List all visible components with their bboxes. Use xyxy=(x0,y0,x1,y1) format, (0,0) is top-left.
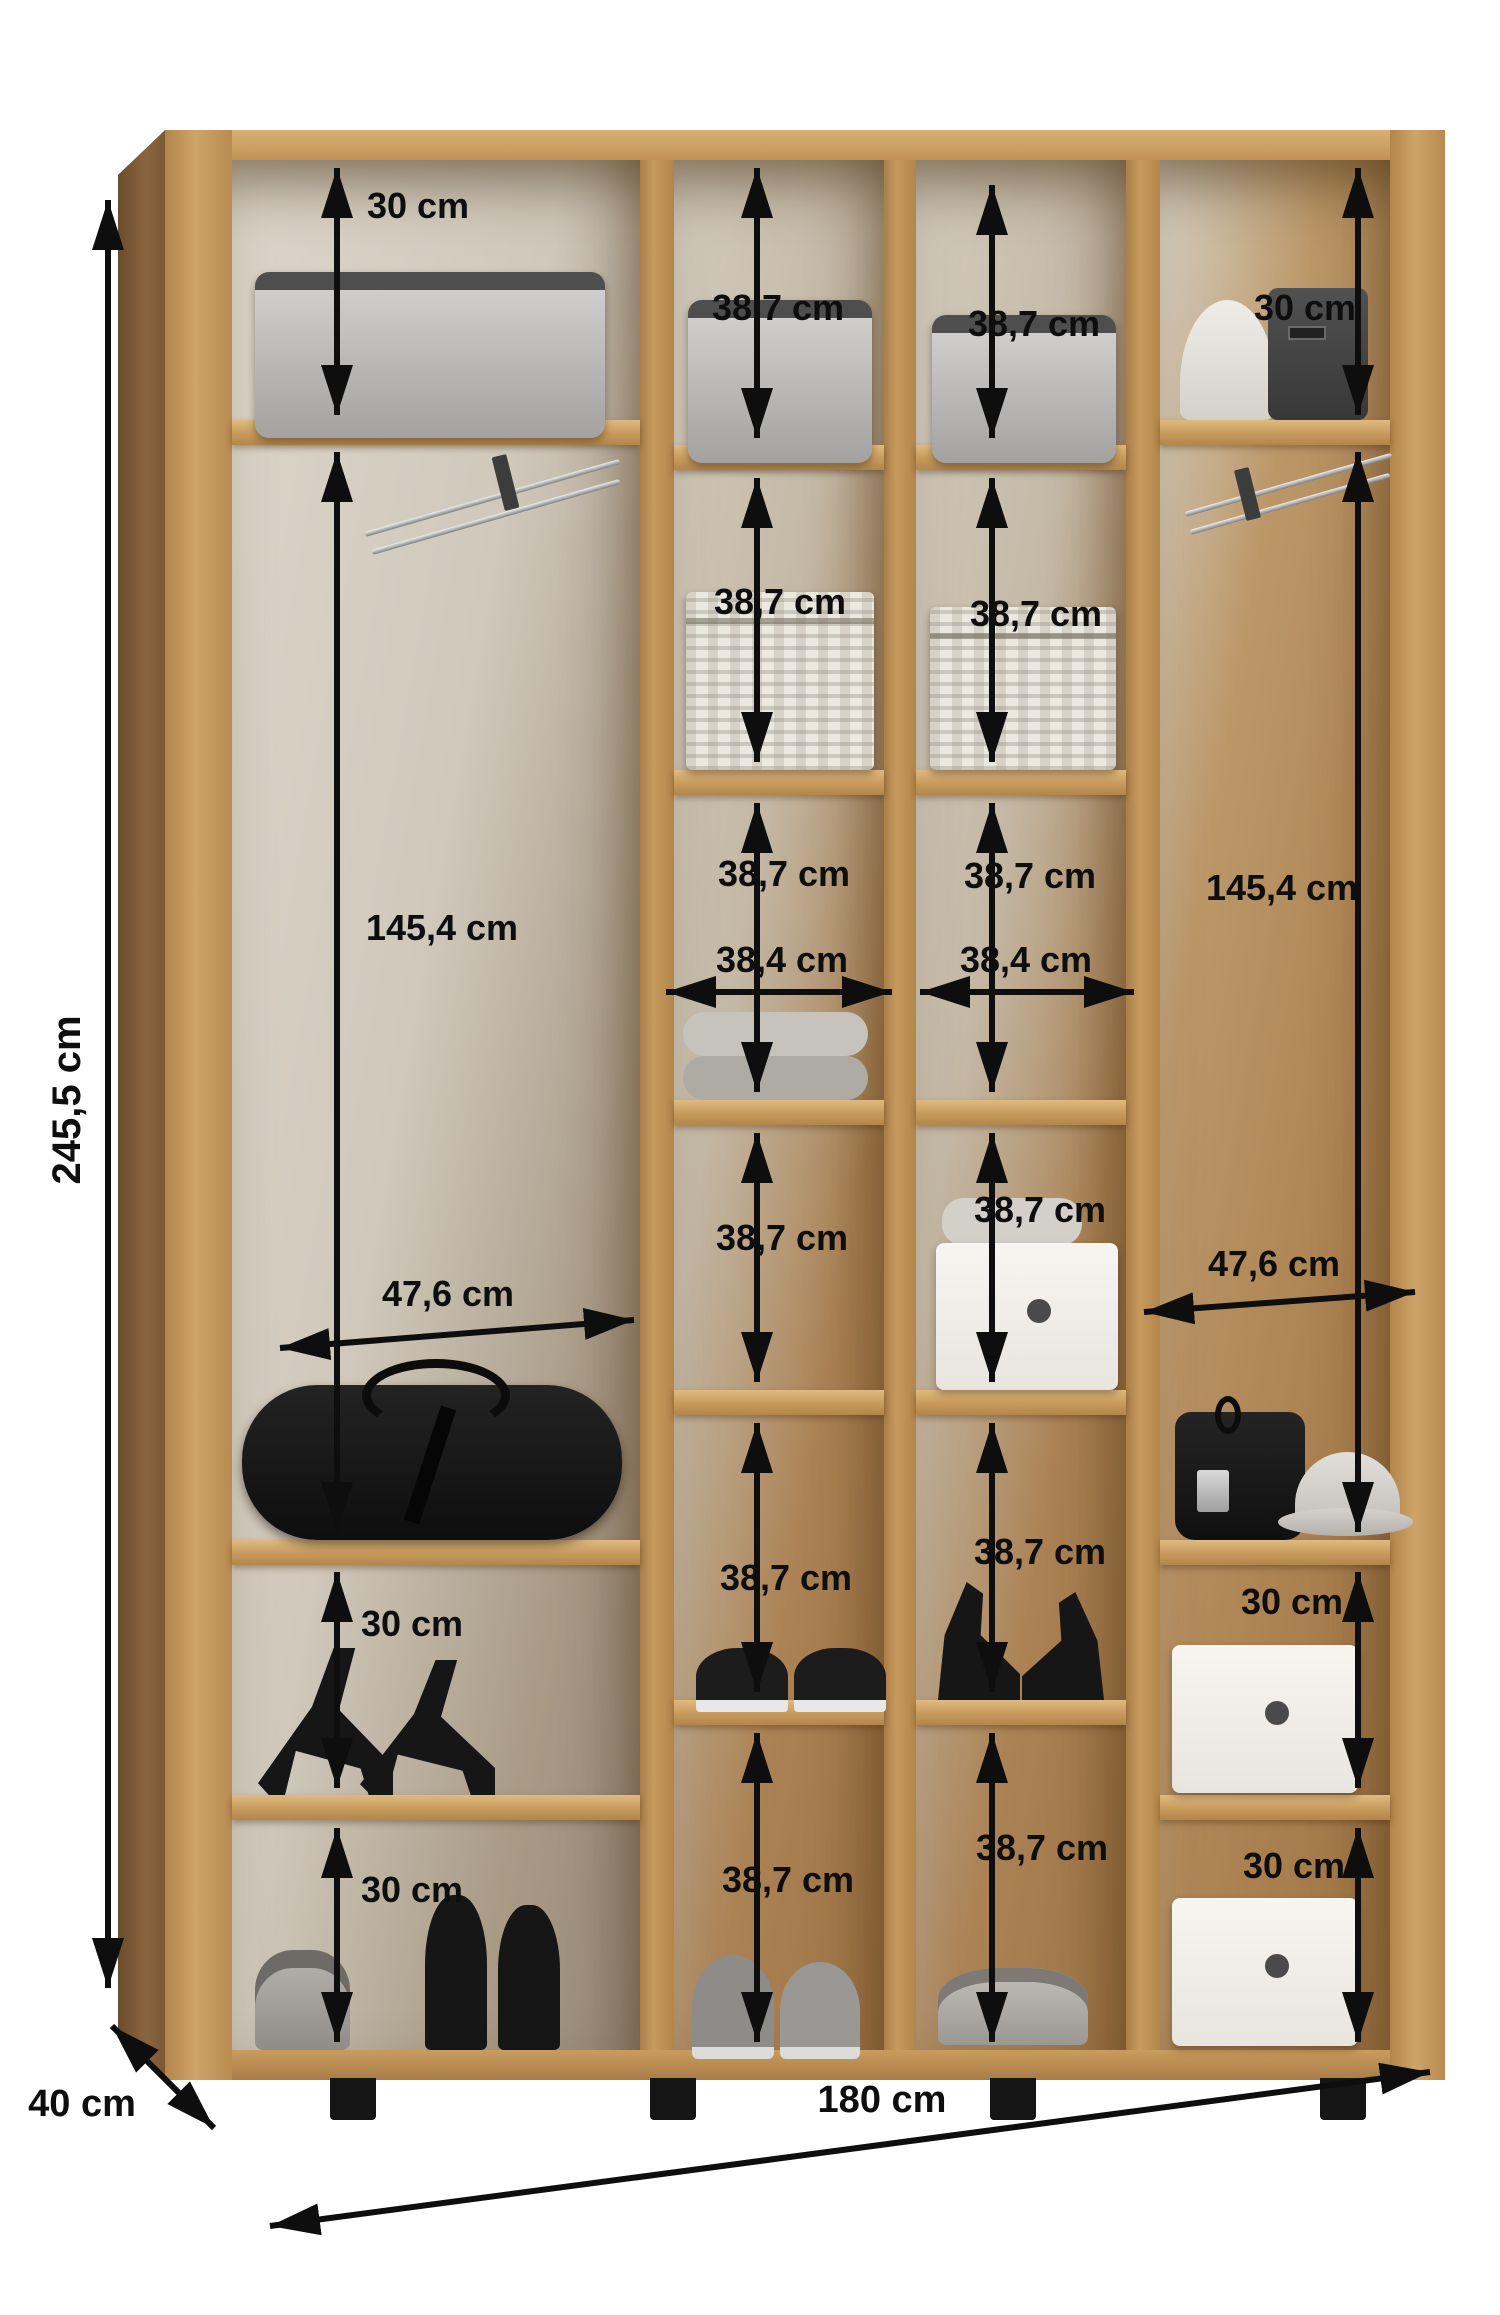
dim-label-col2-r1: 38,7 cm xyxy=(712,287,844,328)
dimension-overlay: 245,5 cm 30 cm 145,4 cm 47,6 cm 30 cm 30… xyxy=(0,0,1500,2315)
dim-label-col1-shoe-upper: 30 cm xyxy=(361,1603,463,1644)
dim-label-col1-top30: 30 cm xyxy=(367,185,469,226)
dim-label-col1-hanging: 145,4 cm xyxy=(366,907,518,948)
dim-label-col4-bin-upper: 30 cm xyxy=(1241,1581,1343,1622)
dim-label-overall-width: 180 cm xyxy=(818,2079,947,2121)
dim-label-overall-height: 245,5 cm xyxy=(45,1015,89,1184)
dim-label-col4-top30: 30 cm xyxy=(1254,287,1356,328)
dim-label-col1-shoe-lower: 30 cm xyxy=(361,1869,463,1910)
dim-label-depth: 40 cm xyxy=(28,2083,136,2125)
dim-label-col2-width: 38,4 cm xyxy=(716,939,848,980)
dim-label-col4-width: 47,6 cm xyxy=(1208,1243,1340,1284)
dim-label-col3-r2: 38,7 cm xyxy=(970,593,1102,634)
dim-label-col2-r4: 38,7 cm xyxy=(716,1217,848,1258)
wardrobe-dimension-diagram: 245,5 cm 30 cm 145,4 cm 47,6 cm 30 cm 30… xyxy=(0,0,1500,2315)
dim-label-col3-r4: 38,7 cm xyxy=(974,1189,1106,1230)
dim-label-col3-width: 38,4 cm xyxy=(960,939,1092,980)
dim-label-col3-r5: 38,7 cm xyxy=(974,1531,1106,1572)
dim-label-col4-hanging: 145,4 cm xyxy=(1206,867,1358,908)
dim-label-col3-r6: 38,7 cm xyxy=(976,1827,1108,1868)
dim-label-col2-r3: 38,7 cm xyxy=(718,853,850,894)
dim-arrow-col1-width xyxy=(280,1320,634,1348)
dim-arrow-col4-width xyxy=(1144,1292,1415,1312)
dim-label-col2-r2: 38,7 cm xyxy=(714,581,846,622)
dim-label-col2-r5: 38,7 cm xyxy=(720,1557,852,1598)
dim-label-col1-width: 47,6 cm xyxy=(382,1273,514,1314)
dim-label-col3-r1: 38,7 cm xyxy=(968,303,1100,344)
dim-label-col3-r3: 38,7 cm xyxy=(964,855,1096,896)
dim-label-col2-r6: 38,7 cm xyxy=(722,1859,854,1900)
dim-label-col4-bin-lower: 30 cm xyxy=(1243,1845,1345,1886)
